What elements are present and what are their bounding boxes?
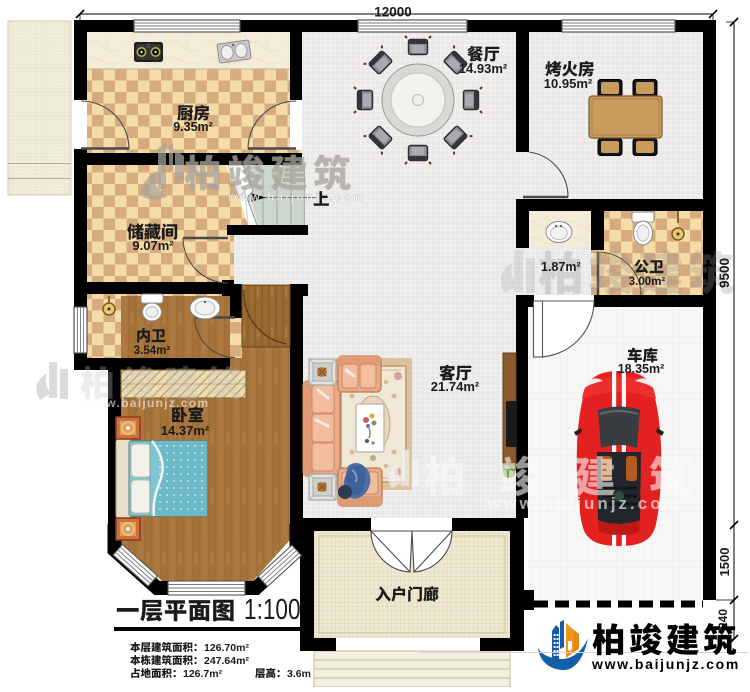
svg-text:9.35m²: 9.35m² — [173, 120, 213, 134]
svg-text:3.00m²: 3.00m² — [629, 276, 666, 288]
svg-text:1500: 1500 — [717, 548, 732, 577]
svg-text:www.baijunjz.com: www.baijunjz.com — [227, 192, 366, 204]
svg-text:126.70m²: 126.70m² — [204, 642, 249, 654]
svg-text:14.93m²: 14.93m² — [459, 61, 508, 76]
svg-text:18.35m²: 18.35m² — [618, 362, 665, 376]
svg-text:3.54m²: 3.54m² — [134, 345, 171, 357]
svg-text:www.baijunjz.com: www.baijunjz.com — [84, 396, 209, 410]
svg-text:1:100: 1:100 — [244, 592, 301, 625]
svg-text:www.baijunjz.com: www.baijunjz.com — [591, 656, 740, 672]
svg-text:14.37m²: 14.37m² — [161, 423, 210, 438]
svg-text:9500: 9500 — [717, 258, 732, 288]
svg-text:3.6m: 3.6m — [287, 668, 311, 680]
svg-text:126.7m²: 126.7m² — [183, 668, 223, 680]
svg-text:247.64m²: 247.64m² — [204, 655, 249, 667]
svg-text:1.87m²: 1.87m² — [541, 260, 581, 274]
svg-text:12000: 12000 — [374, 5, 412, 20]
svg-text:21.74m²: 21.74m² — [431, 379, 480, 394]
svg-text:9.07m²: 9.07m² — [132, 238, 174, 253]
svg-text:www.baijunjz.com: www.baijunjz.com — [486, 494, 682, 513]
svg-text:10.95m²: 10.95m² — [544, 76, 593, 91]
